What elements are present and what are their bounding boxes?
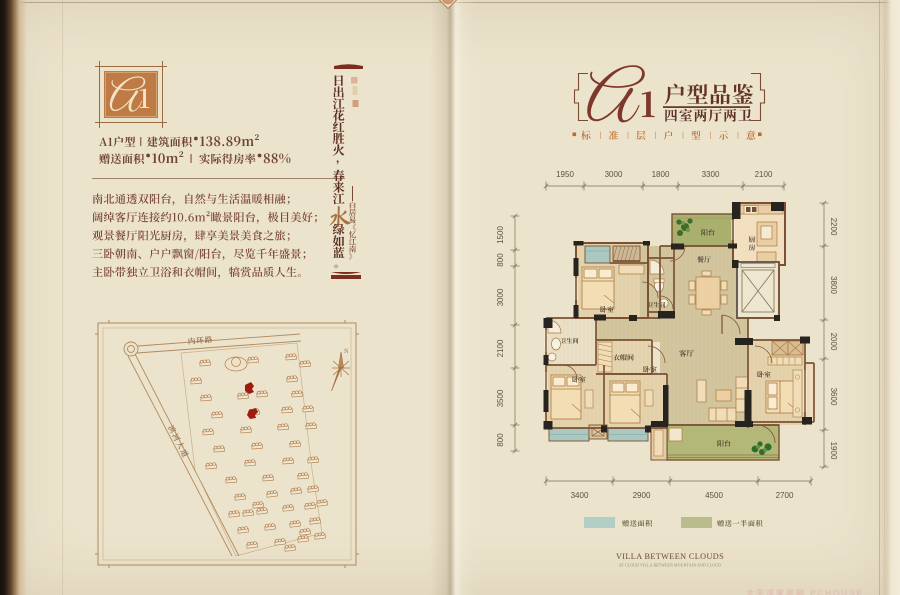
svg-text:2700: 2700 [776, 491, 794, 500]
svg-text:4500: 4500 [705, 491, 723, 500]
svg-text:3000: 3000 [605, 170, 623, 179]
svg-text:800: 800 [496, 433, 505, 447]
svg-text:VILLA BETWEEN CLOUDS: VILLA BETWEEN CLOUDS [616, 552, 724, 561]
svg-text:1500: 1500 [496, 226, 505, 244]
svg-text:3800: 3800 [829, 276, 838, 294]
svg-text:1950: 1950 [556, 170, 574, 179]
svg-text:2200: 2200 [829, 218, 838, 236]
svg-text:2100: 2100 [496, 339, 505, 357]
svg-text:2900: 2900 [633, 491, 651, 500]
svg-text:3600: 3600 [829, 388, 838, 406]
svg-text:3300: 3300 [702, 170, 720, 179]
svg-text:3400: 3400 [571, 491, 589, 500]
svg-text:2000: 2000 [829, 333, 838, 351]
svg-text:2100: 2100 [755, 170, 773, 179]
svg-text:1800: 1800 [652, 170, 670, 179]
svg-text:1900: 1900 [829, 442, 838, 460]
svg-text:3500: 3500 [496, 389, 505, 407]
svg-text:800: 800 [496, 253, 505, 267]
svg-text:3000: 3000 [496, 288, 505, 306]
svg-text:AT CLOUD VILLA BETWEEN MOUNTAI: AT CLOUD VILLA BETWEEN MOUNTAIN AND CLOU… [619, 564, 721, 568]
